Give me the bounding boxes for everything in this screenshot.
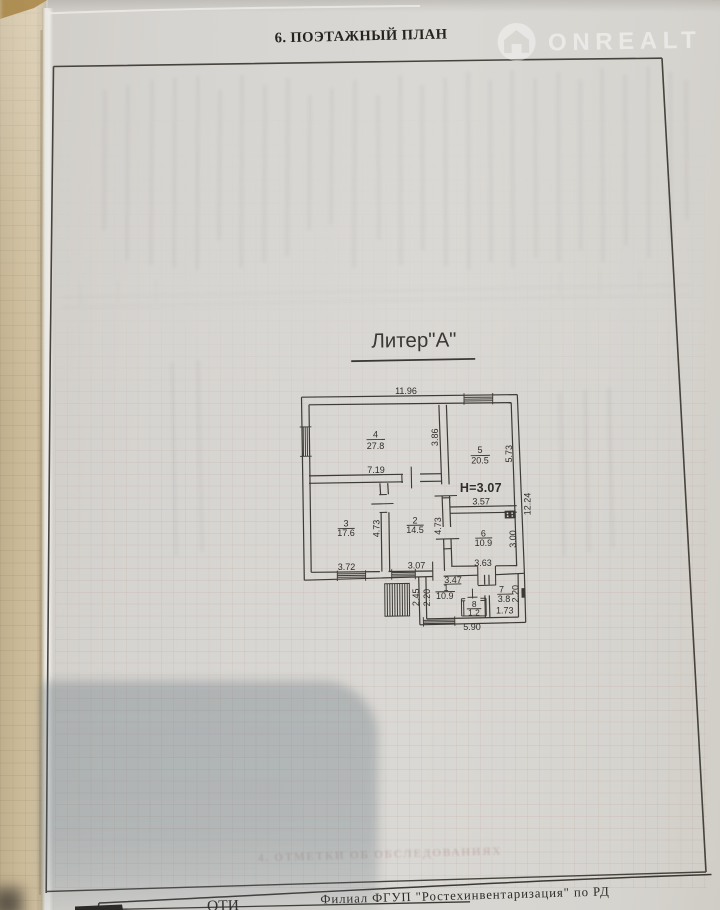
svg-text:7.19: 7.19 <box>367 465 385 475</box>
svg-text:3.72: 3.72 <box>338 562 356 572</box>
svg-text:6: 6 <box>481 528 486 538</box>
svg-text:ONREALT: ONREALT <box>548 27 702 57</box>
svg-text:20.5: 20.5 <box>471 456 489 466</box>
svg-text:2.45: 2.45 <box>411 589 421 607</box>
svg-text:4: 4 <box>373 430 378 440</box>
svg-text:2.20: 2.20 <box>422 589 432 607</box>
svg-text:3.86: 3.86 <box>430 429 440 447</box>
svg-text:12.24: 12.24 <box>522 493 532 516</box>
svg-text:27.8: 27.8 <box>367 441 385 451</box>
svg-text:14.5: 14.5 <box>406 525 424 535</box>
svg-text:3.63: 3.63 <box>474 558 492 568</box>
svg-text:5: 5 <box>477 445 482 455</box>
svg-text:3.00: 3.00 <box>508 530 518 548</box>
svg-text:10.9: 10.9 <box>436 591 454 601</box>
svg-text:4.73: 4.73 <box>433 517 443 535</box>
svg-text:10.9: 10.9 <box>475 538 493 548</box>
svg-text:3.57: 3.57 <box>472 496 490 506</box>
svg-text:11.96: 11.96 <box>395 386 417 396</box>
svg-text:Литер"А": Литер"А" <box>371 328 456 352</box>
svg-text:5.90: 5.90 <box>463 622 481 632</box>
svg-text:1.73: 1.73 <box>496 605 514 615</box>
svg-text:2: 2 <box>412 515 417 525</box>
svg-text:17.6: 17.6 <box>337 528 355 538</box>
svg-text:H=3.07: H=3.07 <box>460 481 502 495</box>
svg-text:5.73: 5.73 <box>504 445 514 463</box>
svg-text:7: 7 <box>499 585 504 595</box>
svg-text:4.73: 4.73 <box>372 520 382 538</box>
svg-text:3.8: 3.8 <box>498 594 511 604</box>
svg-text:6. ПОЭТАЖНЫЙ ПЛАН: 6. ПОЭТАЖНЫЙ ПЛАН <box>274 25 447 46</box>
svg-text:3.07: 3.07 <box>408 560 426 570</box>
